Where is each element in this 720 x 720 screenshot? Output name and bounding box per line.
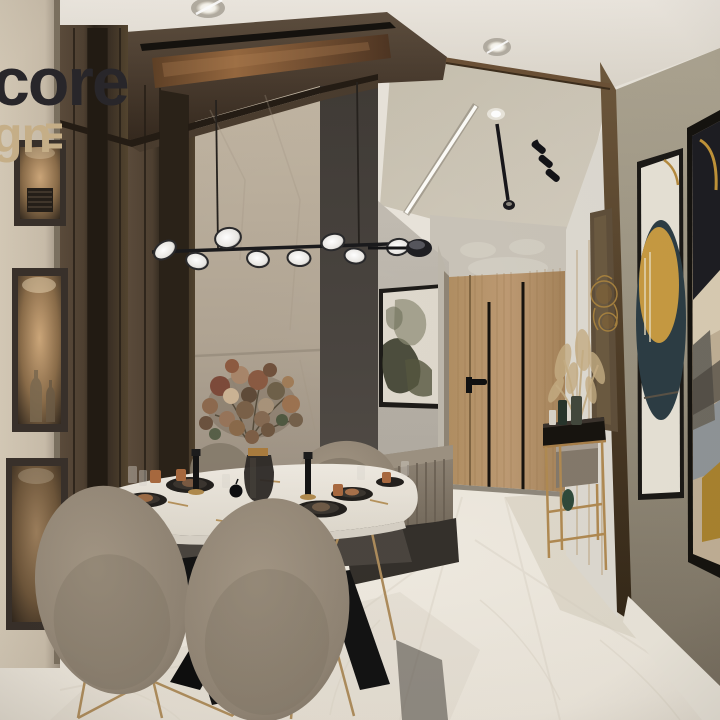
svg-text:gn: gn: [0, 107, 51, 163]
